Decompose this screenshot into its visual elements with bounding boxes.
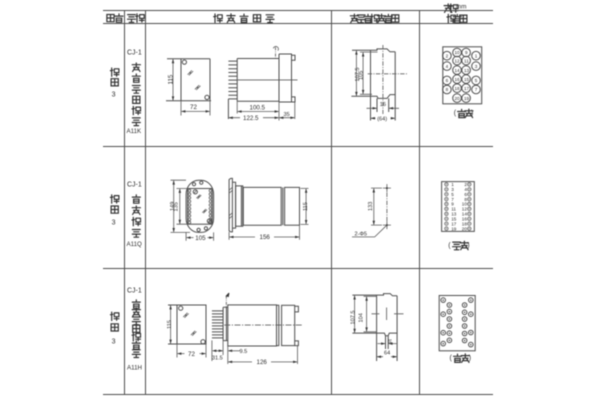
svg-text:3: 3 (112, 339, 116, 346)
svg-text:16: 16 (380, 102, 386, 108)
svg-text:9.5: 9.5 (240, 349, 248, 355)
svg-text:72: 72 (188, 351, 195, 358)
svg-text:5: 5 (475, 78, 478, 83)
svg-text:3: 3 (112, 220, 116, 227)
svg-text:8: 8 (446, 87, 449, 92)
svg-text:126: 126 (257, 359, 268, 366)
svg-text:19: 19 (451, 226, 457, 231)
svg-text:16: 16 (455, 77, 461, 82)
svg-text:72: 72 (190, 104, 197, 111)
svg-text:156: 156 (260, 234, 271, 241)
svg-text:CJ-1: CJ-1 (127, 182, 142, 189)
svg-text:64: 64 (384, 351, 390, 357)
svg-text:11: 11 (464, 58, 469, 63)
svg-text:20: 20 (462, 226, 468, 231)
svg-text:1: 1 (475, 53, 478, 58)
svg-text:A11K: A11K (127, 128, 143, 135)
svg-text:A11Q: A11Q (127, 241, 143, 248)
svg-text:107.5: 107.5 (350, 311, 356, 325)
svg-text:35: 35 (284, 112, 290, 118)
svg-text:4: 4 (446, 64, 449, 69)
svg-text:A11H: A11H (127, 365, 142, 372)
svg-text:2-Φ5: 2-Φ5 (355, 232, 368, 238)
svg-text:16: 16 (387, 339, 392, 345)
svg-text::mm: :mm (454, 4, 466, 11)
svg-text:(64): (64) (377, 116, 387, 122)
svg-text:122.5: 122.5 (243, 115, 259, 122)
svg-text:17: 17 (464, 86, 470, 91)
svg-text:12: 12 (455, 58, 461, 63)
svg-text:104: 104 (358, 313, 364, 322)
svg-text:135: 135 (174, 202, 180, 211)
svg-text:10: 10 (455, 50, 461, 55)
svg-text:): ) (467, 242, 469, 249)
svg-text:15: 15 (464, 77, 470, 82)
svg-text:9: 9 (465, 50, 468, 55)
svg-text:133: 133 (368, 202, 374, 211)
svg-text:20: 20 (455, 96, 461, 101)
svg-text:): ) (471, 110, 473, 117)
svg-text:6: 6 (446, 78, 449, 83)
svg-text:CJ-1: CJ-1 (127, 288, 142, 295)
svg-text:105: 105 (195, 235, 206, 242)
svg-text:105: 105 (358, 71, 364, 80)
svg-text:13: 13 (464, 68, 470, 73)
svg-text:3: 3 (475, 64, 478, 69)
svg-text:115: 115 (168, 74, 175, 84)
svg-text:31.5: 31.5 (212, 356, 223, 362)
svg-text:7: 7 (475, 87, 478, 92)
svg-text:CJ-1: CJ-1 (127, 50, 142, 57)
svg-text:3: 3 (112, 92, 116, 99)
svg-text:19: 19 (464, 96, 470, 101)
svg-text:2: 2 (446, 53, 449, 58)
svg-text:115: 115 (303, 202, 309, 211)
svg-text:): ) (469, 355, 471, 362)
svg-text:18: 18 (455, 86, 461, 91)
svg-text:100.5: 100.5 (250, 104, 266, 111)
svg-text:14: 14 (455, 68, 461, 73)
svg-text:115: 115 (167, 320, 173, 329)
